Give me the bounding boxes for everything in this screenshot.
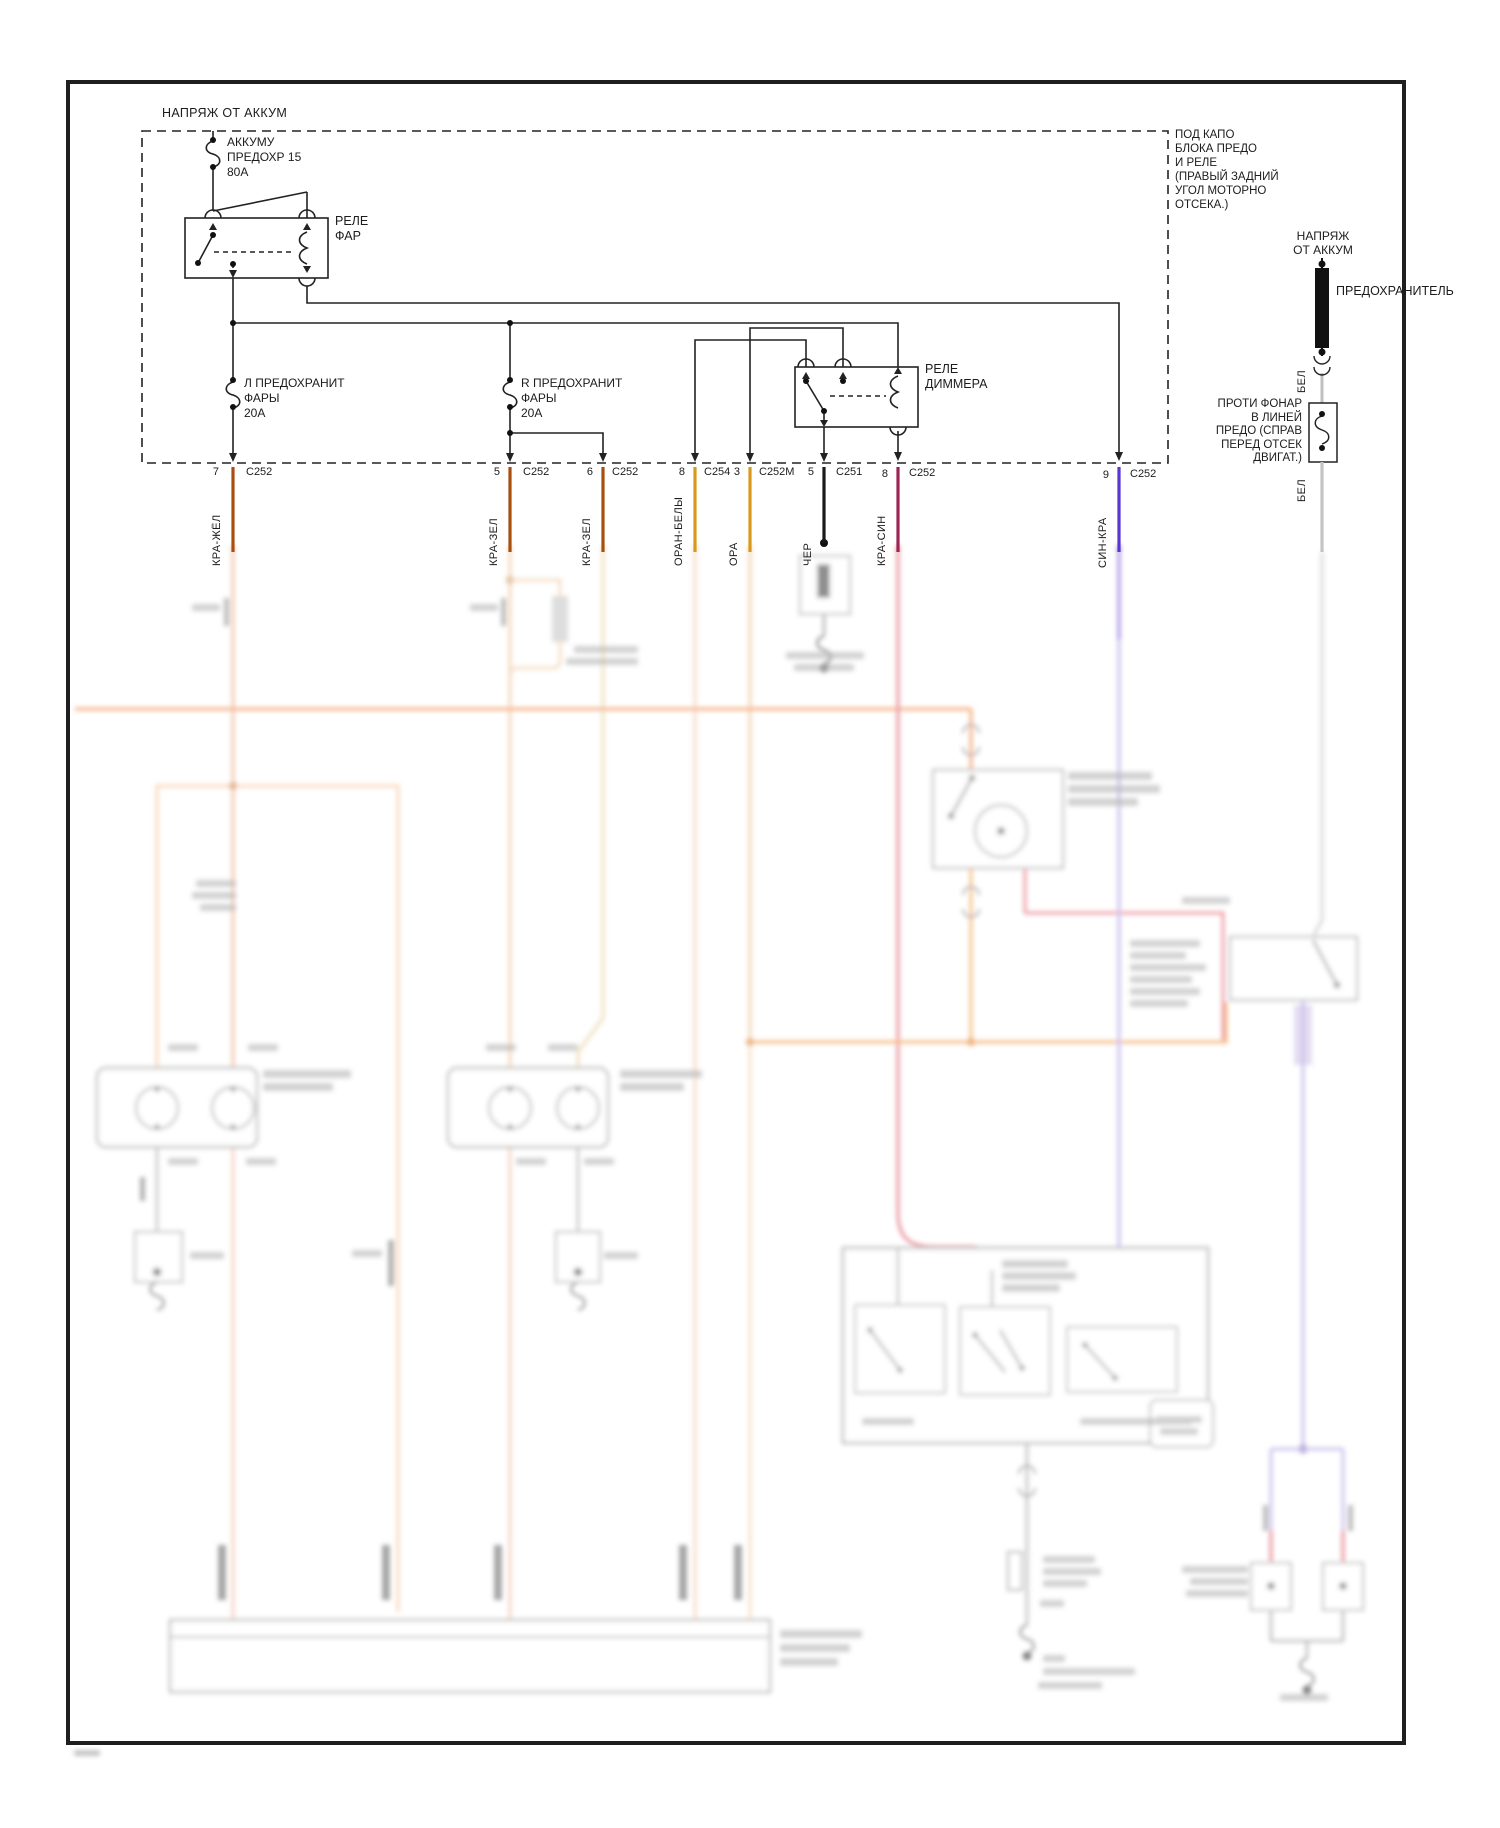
wire-label-kra-zel-1: КРА-ЗЕЛ	[488, 484, 500, 566]
connector-pin-8b: 8	[868, 468, 888, 480]
connector-name-c252-9: C252	[1130, 468, 1156, 480]
connector-name-c252m: C252M	[759, 466, 794, 478]
wire-label-kra-sin: КРА-СИН	[876, 484, 888, 566]
coil-to-c252-9	[307, 286, 1119, 452]
connector-pin-5: 5	[480, 466, 500, 478]
wire-label-cher: ЧЕР	[802, 484, 814, 566]
relay-dimmer-box	[795, 367, 918, 427]
wire-label-kra-zhel: КРА-ЖЁЛ	[211, 484, 223, 566]
wire-label-bel-bottom: БЕЛ	[1296, 472, 1308, 502]
wire-label-kra-zel-2: КРА-ЗЕЛ	[581, 484, 593, 566]
connector-pin-9: 9	[1089, 469, 1109, 481]
wiring-diagram-page: НАПРЯЖ ОТ АККУМ АККУМУПРЕДОХР 1580А РЕЛЕ…	[0, 0, 1500, 1828]
fog-fuse-note: ПРОТИ ФОНАРВ ЛИНЕЙПРЕДО (СПРАВПЕРЕД ОТСЕ…	[1190, 398, 1302, 466]
relay-output-bus	[233, 278, 898, 367]
connector-name-c252-7: C252	[246, 466, 272, 478]
connector-name-c252-5: C252	[523, 466, 549, 478]
connector-name-c252-8: C252	[909, 467, 935, 479]
wiring-diagram-canvas	[0, 0, 1500, 1828]
fuse-left-label: Л ПРЕДОХРАНИТФАРЫ20А	[244, 376, 345, 421]
arrow-markers	[209, 223, 1123, 462]
underhood-note: ПОД КАПОБЛОКА ПРЕДОИ РЕЛЕ(ПРАВЫЙ ЗАДНИЙУ…	[1175, 128, 1279, 212]
wire-label-bel-top: БЕЛ	[1296, 363, 1308, 393]
wire-label-ora: ОРА	[728, 484, 740, 566]
fuse-battery-label: АККУМУПРЕДОХР 1580А	[227, 135, 301, 180]
battery-feed-right-label: НАПРЯЖОТ АККУМ	[1284, 230, 1362, 257]
relay-dimmer-label: РЕЛЕДИММЕРА	[925, 362, 987, 392]
relay-dimmer-coil	[891, 376, 899, 408]
battery-fuse-right	[1315, 268, 1329, 348]
connector-pin-5b: 5	[794, 466, 814, 478]
connector-pin-6: 6	[573, 466, 593, 478]
wire-label-oran-bely: ОРАН-БЕЛЫ	[673, 484, 685, 566]
connector-pin-8: 8	[665, 466, 685, 478]
relay-headlamp-coil	[300, 232, 308, 264]
connector-name-c251: C251	[836, 466, 862, 478]
junction-dots	[195, 137, 1326, 547]
fuse-right-label: R ПРЕДОХРАНИТФАРЫ20А	[521, 376, 622, 421]
blur-veil	[70, 552, 1402, 1741]
fog-inline-fuse-symbol	[1315, 416, 1329, 444]
battery-feed-label: НАПРЯЖ ОТ АККУМ	[162, 106, 287, 121]
wire-label-sin-kra: СИН-КРА	[1097, 486, 1109, 568]
fuse-right-column-label: ПРЕДОХРАНИТЕЛЬ	[1336, 284, 1454, 299]
connector-pin-7: 7	[199, 466, 219, 478]
fuse-battery-symbol	[206, 141, 220, 167]
connector-pin-3: 3	[720, 466, 740, 478]
connector-name-c252-6: C252	[612, 466, 638, 478]
relay-headlamp-label: РЕЛЕФАР	[335, 214, 368, 244]
